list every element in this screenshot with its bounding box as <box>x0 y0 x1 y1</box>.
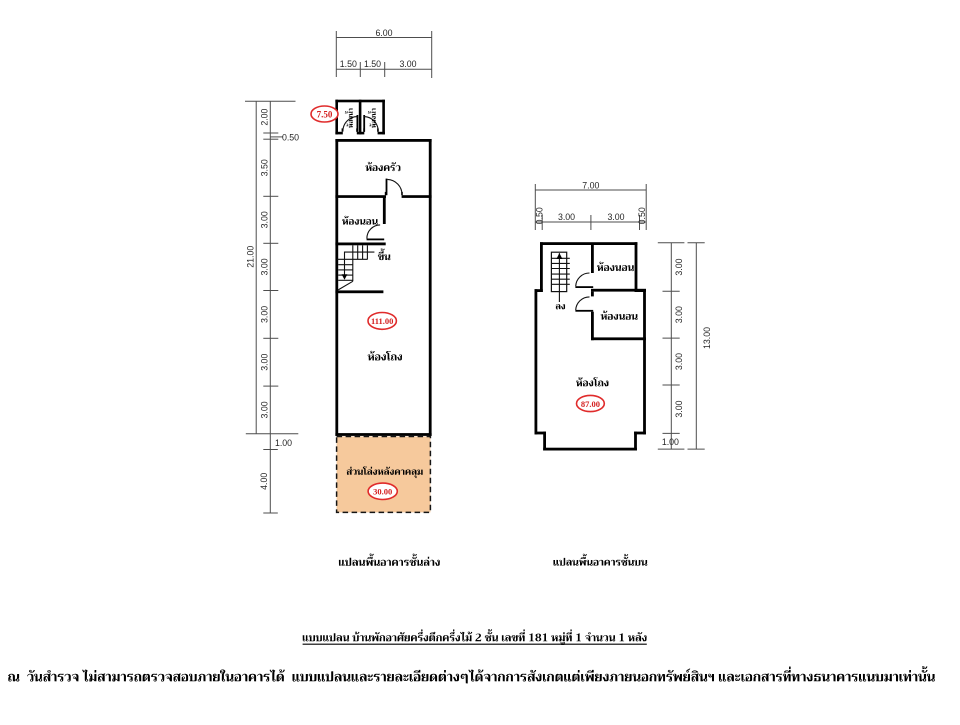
svg-text:21.00: 21.00 <box>246 246 256 268</box>
svg-text:3.00: 3.00 <box>260 258 270 275</box>
svg-text:3.00: 3.00 <box>674 353 684 370</box>
svg-text:3.00: 3.00 <box>260 401 270 418</box>
svg-text:7.00: 7.00 <box>582 180 599 190</box>
svg-text:6.00: 6.00 <box>375 28 392 38</box>
svg-text:4.00: 4.00 <box>259 473 269 490</box>
svg-text:7.50: 7.50 <box>317 109 333 119</box>
svg-text:0.50: 0.50 <box>535 207 545 224</box>
svg-text:2.00: 2.00 <box>260 108 270 125</box>
svg-text:1.00: 1.00 <box>662 437 679 447</box>
svg-text:3.00: 3.00 <box>607 212 624 222</box>
svg-text:111.00: 111.00 <box>371 316 393 326</box>
svg-text:0.50: 0.50 <box>282 133 299 143</box>
svg-text:3.00: 3.00 <box>674 306 684 323</box>
svg-text:3.00: 3.00 <box>674 258 684 275</box>
svg-text:3.00: 3.00 <box>260 354 270 371</box>
svg-text:3.00: 3.00 <box>399 59 416 69</box>
svg-text:3.50: 3.50 <box>260 159 270 176</box>
svg-text:1.00: 1.00 <box>275 438 292 448</box>
svg-text:87.00: 87.00 <box>581 399 600 409</box>
svg-text:1.50: 1.50 <box>340 59 357 69</box>
svg-text:3.00: 3.00 <box>260 306 270 323</box>
svg-text:30.00: 30.00 <box>373 487 392 497</box>
svg-text:1.50: 1.50 <box>364 59 381 69</box>
svg-text:13.00: 13.00 <box>702 327 712 349</box>
svg-text:3.00: 3.00 <box>558 212 575 222</box>
svg-text:0.50: 0.50 <box>637 207 647 224</box>
svg-text:3.00: 3.00 <box>260 211 270 228</box>
svg-text:3.00: 3.00 <box>674 400 684 417</box>
